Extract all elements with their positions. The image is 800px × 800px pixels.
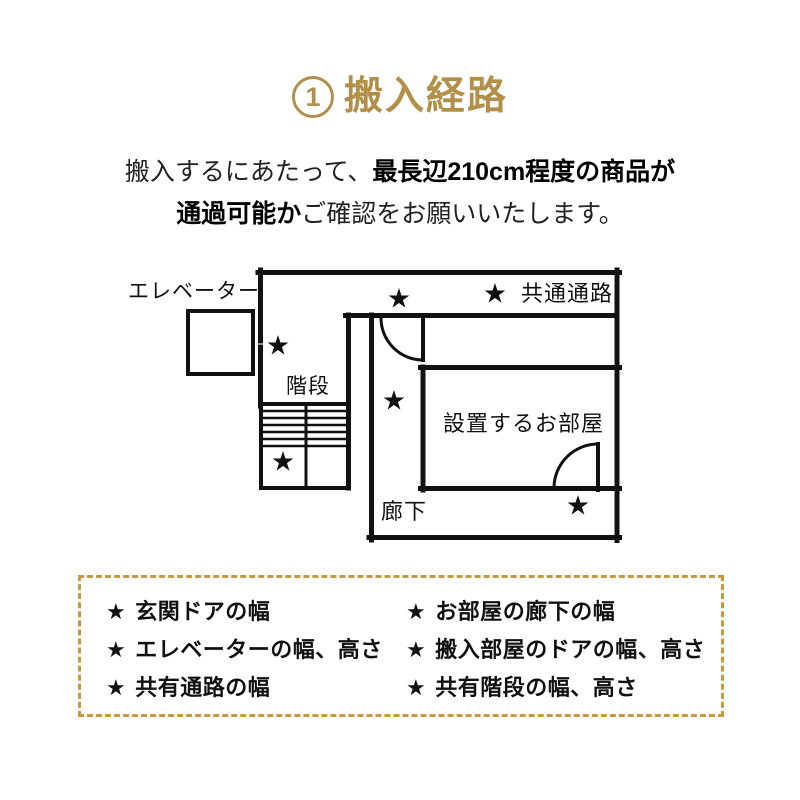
list-item: ★エレベーターの幅、高さ (106, 637, 383, 663)
star-bullet-icon: ★ (406, 675, 426, 700)
checklist-item-label: 共有通路の幅 (135, 675, 270, 700)
label-hallway: 廊下 (381, 501, 427, 523)
checklist-item-label: 搬入部屋のドアの幅、高さ (435, 637, 705, 662)
list-item: ★共有通路の幅 (106, 675, 383, 701)
star-marker: ★ (566, 493, 590, 520)
checklist-item-label: 共有階段の幅、高さ (435, 675, 638, 700)
star-marker: ★ (271, 449, 295, 476)
checklist-item-label: お部屋の廊下の幅 (435, 599, 615, 624)
star-bullet-icon: ★ (406, 599, 426, 624)
page: 1 搬入経路 搬入するにあたって、最長辺210cm程度の商品が 通過可能かご確認… (0, 0, 800, 800)
star-bullet-icon: ★ (106, 675, 126, 700)
checklist-box: ★玄関ドアの幅 ★エレベーターの幅、高さ ★共有通路の幅 ★お部屋の廊下の幅 ★… (78, 575, 724, 717)
list-item: ★お部屋の廊下の幅 (406, 599, 705, 625)
checklist-right-column: ★お部屋の廊下の幅 ★搬入部屋のドアの幅、高さ ★共有階段の幅、高さ (406, 599, 705, 713)
star-bullet-icon: ★ (406, 637, 426, 662)
star-bullet-icon: ★ (106, 599, 126, 624)
label-common-corridor: 共通通路 (521, 283, 613, 305)
elevator-box (188, 311, 253, 374)
entry-door (381, 316, 423, 360)
room-door (554, 444, 598, 490)
list-item: ★玄関ドアの幅 (106, 599, 383, 625)
label-stairs: 階段 (286, 376, 330, 398)
list-item: ★搬入部屋のドアの幅、高さ (406, 637, 705, 663)
checklist-left-column: ★玄関ドアの幅 ★エレベーターの幅、高さ ★共有通路の幅 (106, 599, 383, 713)
checklist-item-label: エレベーターの幅、高さ (135, 637, 383, 662)
star-marker: ★ (483, 281, 507, 308)
star-bullet-icon: ★ (106, 637, 126, 662)
star-marker: ★ (387, 286, 411, 313)
label-elevator: エレベーター (128, 281, 260, 303)
checklist-item-label: 玄関ドアの幅 (135, 599, 270, 624)
star-marker: ★ (266, 333, 290, 360)
label-room: 設置するお部屋 (443, 413, 604, 435)
list-item: ★共有階段の幅、高さ (406, 675, 705, 701)
star-marker: ★ (382, 388, 406, 415)
